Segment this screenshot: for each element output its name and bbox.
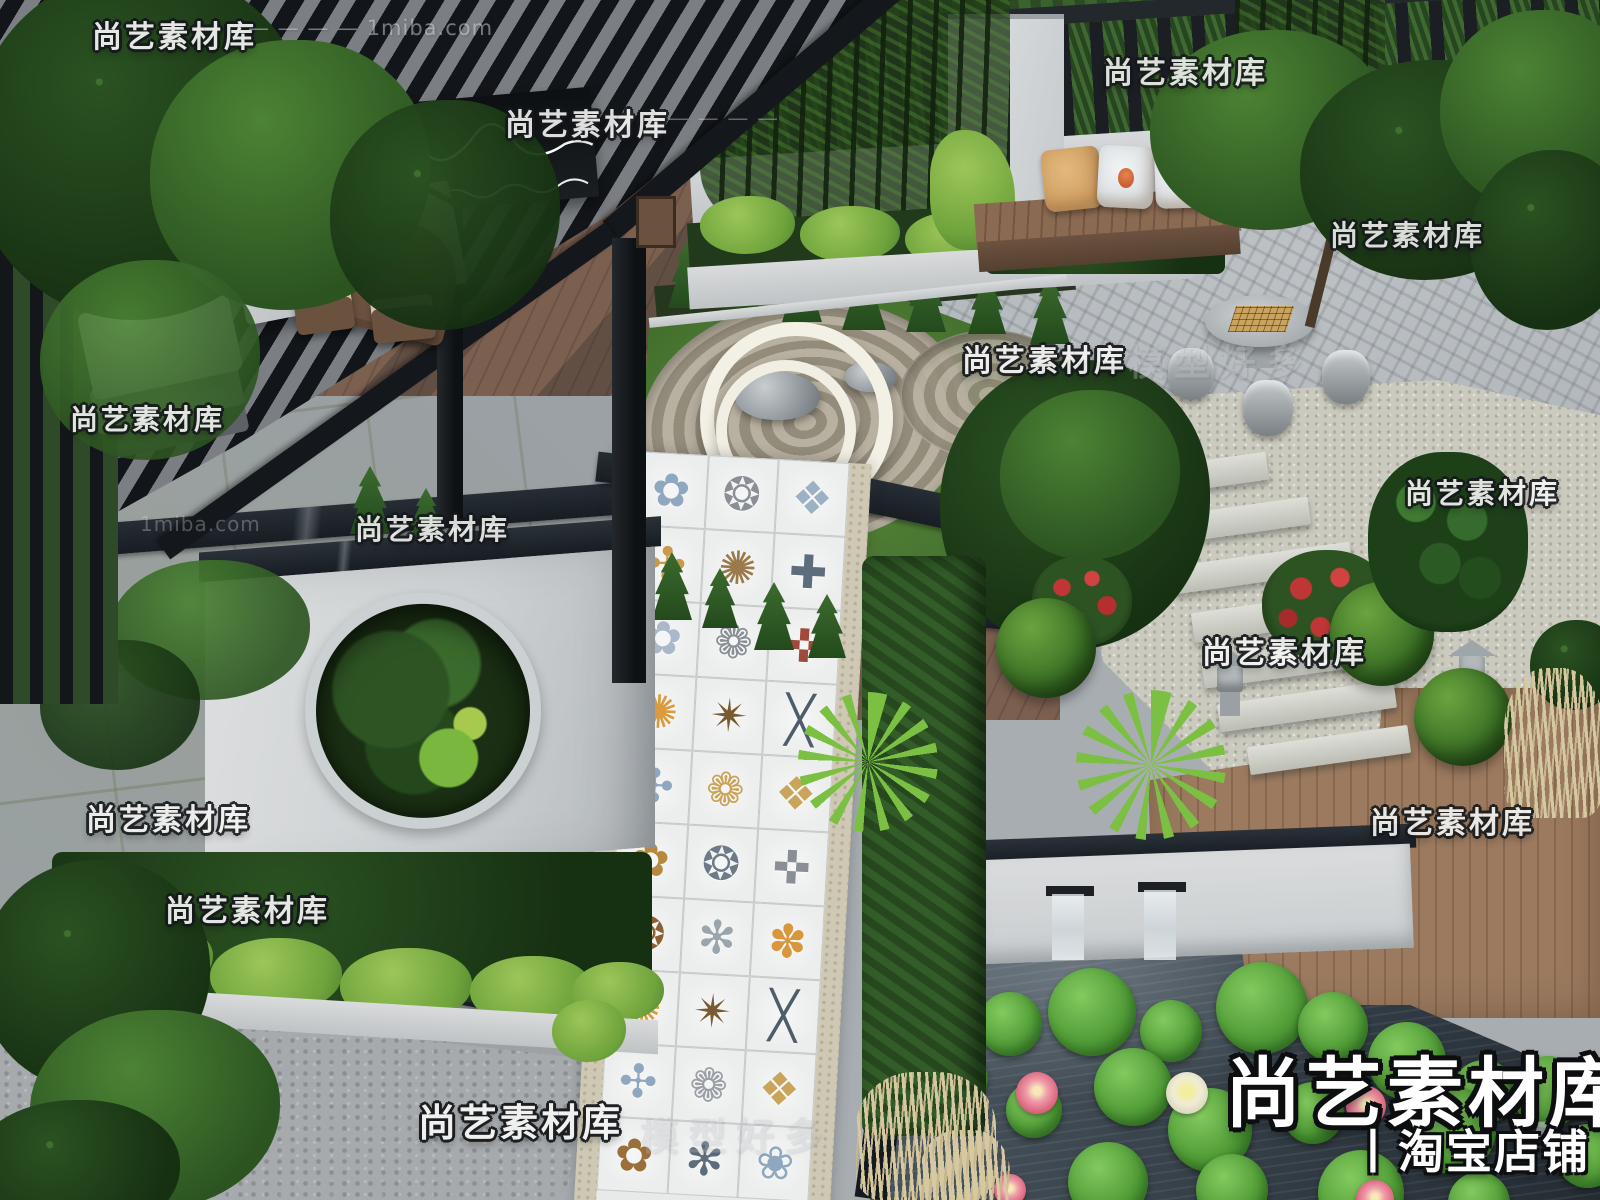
path-tile: ✿ <box>597 1116 672 1194</box>
waterfall-wall <box>974 844 1414 965</box>
path-tile: ✴ <box>675 972 750 1050</box>
moon-gate-opening <box>305 593 541 829</box>
path-tile: ✽ <box>750 902 825 980</box>
path-tile: ❂ <box>684 825 759 903</box>
pampas-grass <box>1504 668 1600 818</box>
hedge-column <box>862 556 986 1136</box>
brand-subtitle: 丨淘宝店铺 <box>1350 1116 1590 1182</box>
pillow-print-doll <box>1118 168 1134 188</box>
topiary-ball <box>1414 668 1512 766</box>
lantern-cap <box>1206 650 1254 666</box>
falling-water <box>1052 894 1084 960</box>
lotus-flower-pink <box>1016 1072 1058 1114</box>
lantern-base <box>1220 692 1240 716</box>
path-tile: ❖ <box>775 459 850 537</box>
palm-plant <box>1076 690 1226 840</box>
path-tile: ❀ <box>738 1124 813 1200</box>
lotus-flower-white <box>1166 1072 1208 1114</box>
path-tile: ✻ <box>667 1120 742 1198</box>
path-tile: ╳ <box>746 976 821 1054</box>
falling-water <box>1144 890 1176 960</box>
lotus-leaf <box>1094 1048 1172 1126</box>
stone-drum-stool <box>1168 348 1214 400</box>
lotus-leaf <box>1048 968 1136 1056</box>
path-tile: ❁ <box>688 751 763 829</box>
garden-render-image: ✿❂❖✣✺✚✿❁✜✺✴╳✣❁❖✿❂✜❂✻✽✺✴╳✣❁❖✿✻❀ <box>0 0 1600 1200</box>
lantern-body <box>1217 666 1243 692</box>
path-tile: ❁ <box>671 1046 746 1124</box>
path-tile: ❂ <box>704 455 779 533</box>
deck-lamp <box>636 196 676 248</box>
lotus-leaf <box>978 992 1042 1056</box>
stone-drum-stool <box>1243 380 1293 436</box>
pillow-tan <box>1040 145 1104 213</box>
stone-lantern <box>1206 650 1254 716</box>
pergola-post <box>612 238 646 683</box>
topiary-ball <box>996 598 1096 698</box>
go-board <box>1228 306 1294 332</box>
path-tile: ❖ <box>742 1050 817 1128</box>
path-tile: ✴ <box>692 677 767 755</box>
path-tile: ✜ <box>754 829 829 907</box>
pampas-grass <box>920 1130 1010 1200</box>
path-tile: ✻ <box>680 898 755 976</box>
palm-plant <box>798 692 938 832</box>
lantern-cap <box>1448 640 1496 656</box>
stone-drum-stool <box>1322 350 1370 404</box>
rubber-plant <box>1368 452 1528 632</box>
